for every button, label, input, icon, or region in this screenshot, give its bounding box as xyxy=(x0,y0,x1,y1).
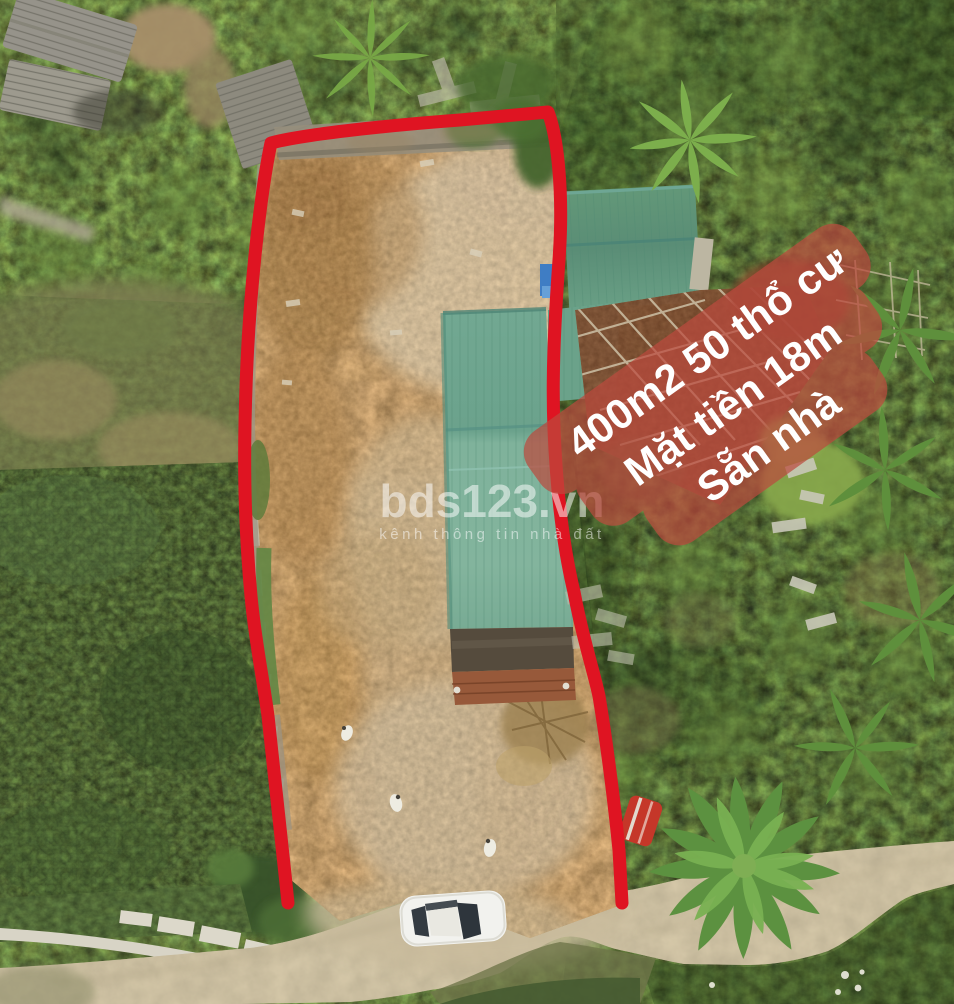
svg-text:kênh thông tin nhà đất: kênh thông tin nhà đất xyxy=(379,526,604,543)
